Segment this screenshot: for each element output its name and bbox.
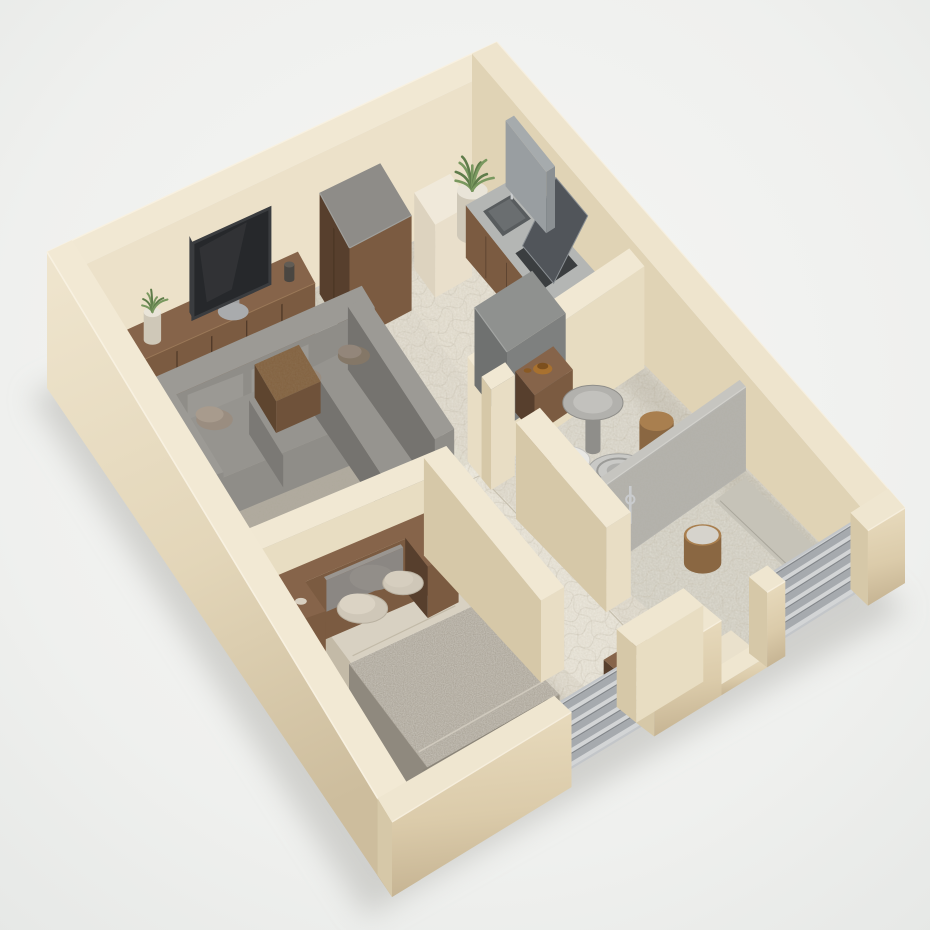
decor-clock: [284, 262, 294, 283]
apartment-isometric-scene: [0, 0, 930, 930]
floor-plan-render: [0, 0, 930, 930]
